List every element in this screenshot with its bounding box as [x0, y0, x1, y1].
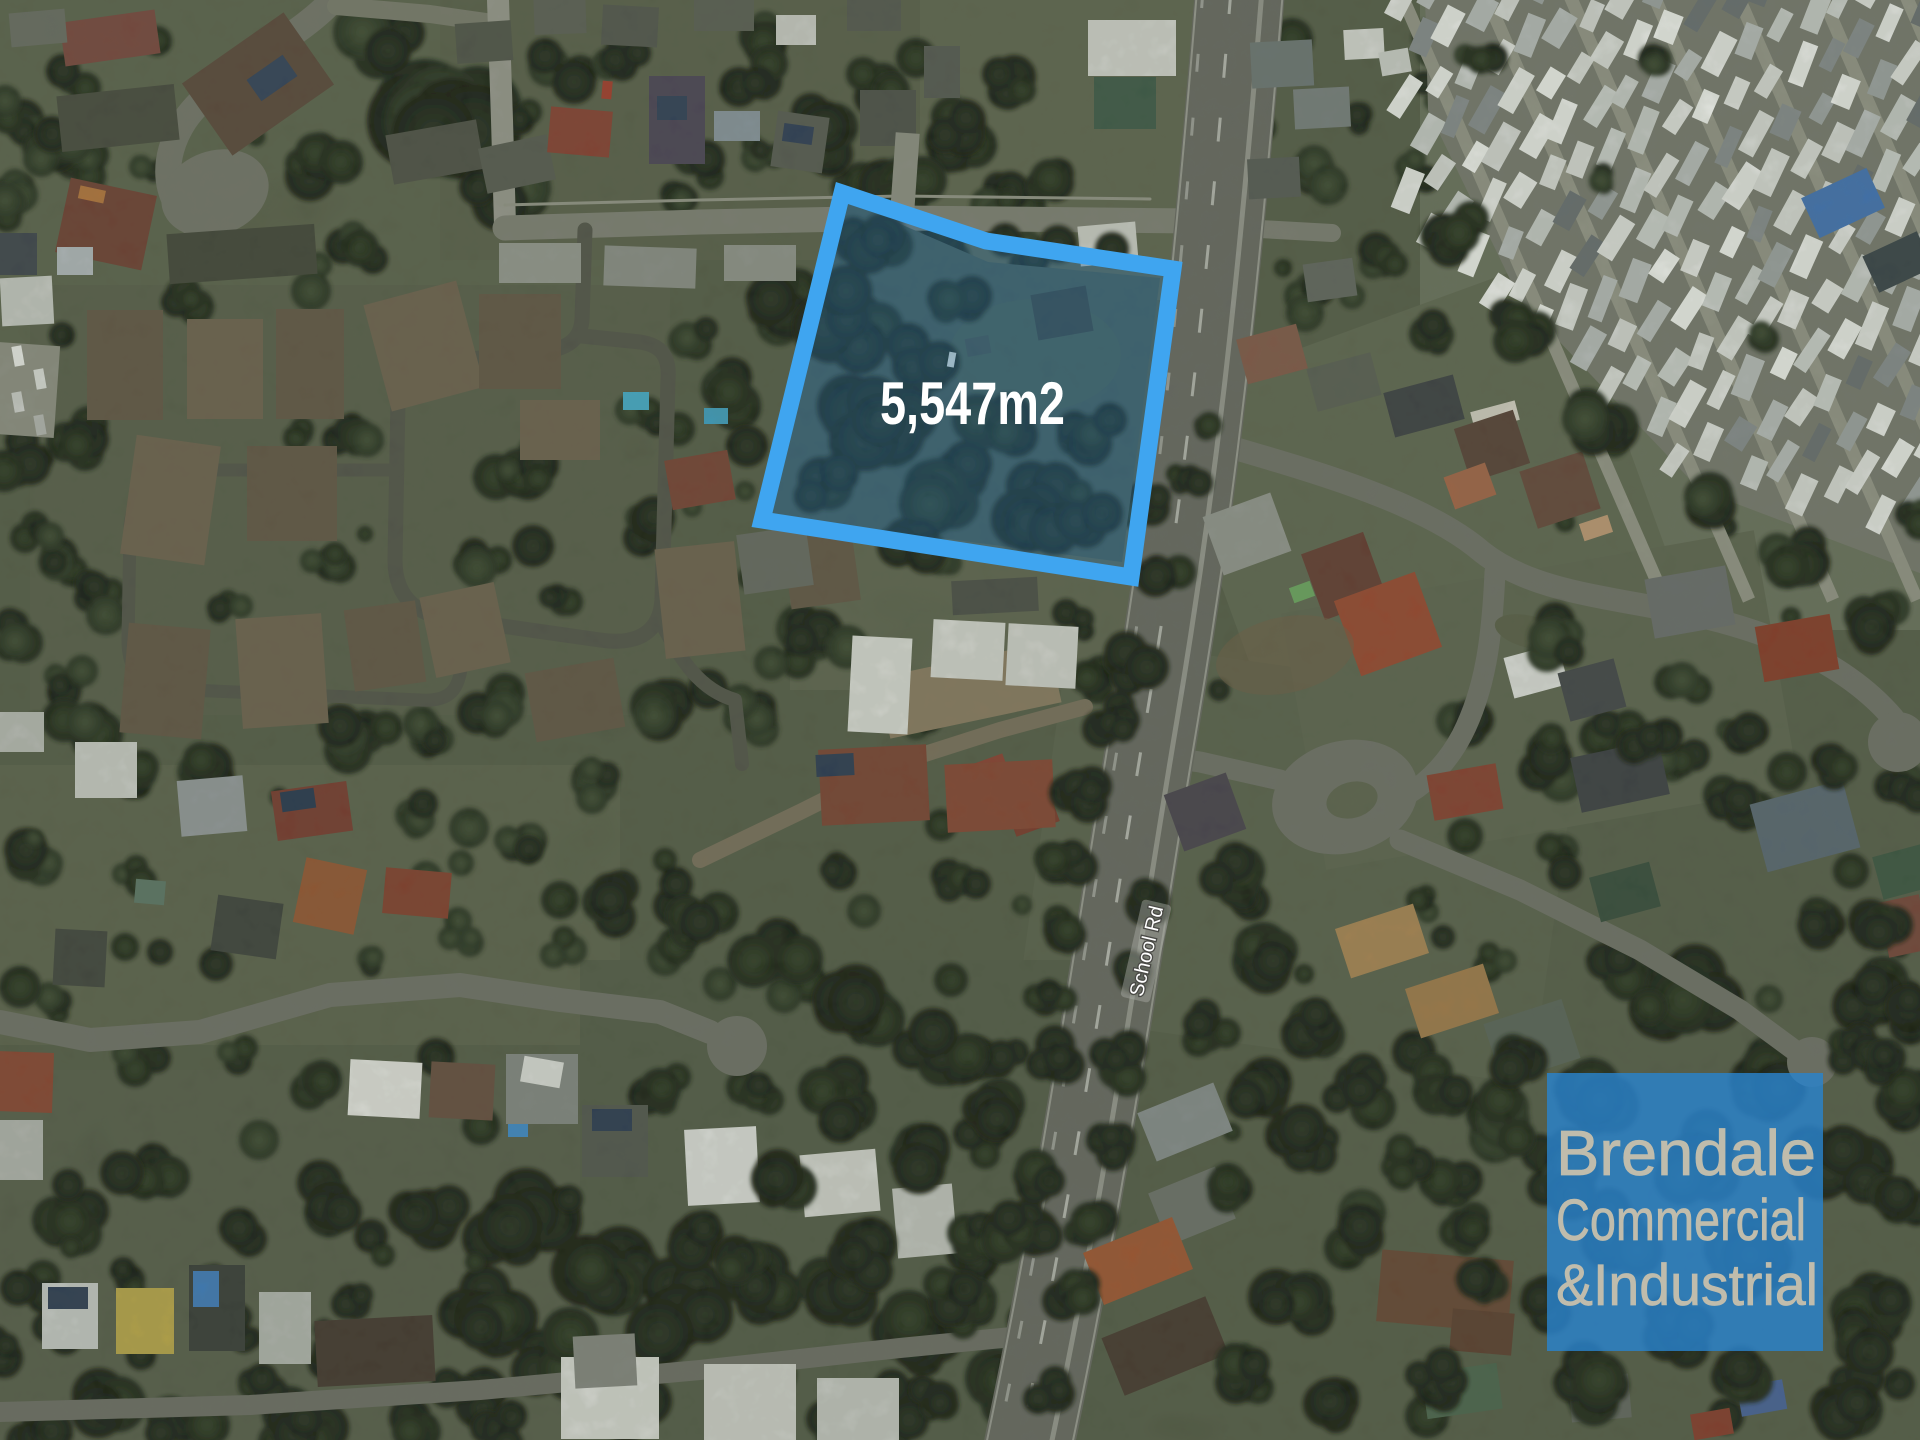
svg-text:Commercial: Commercial [1556, 1188, 1806, 1253]
svg-text:Brendale: Brendale [1556, 1117, 1816, 1189]
svg-text:5,547m2: 5,547m2 [880, 370, 1065, 437]
svg-text:&Industrial: &Industrial [1556, 1253, 1818, 1318]
